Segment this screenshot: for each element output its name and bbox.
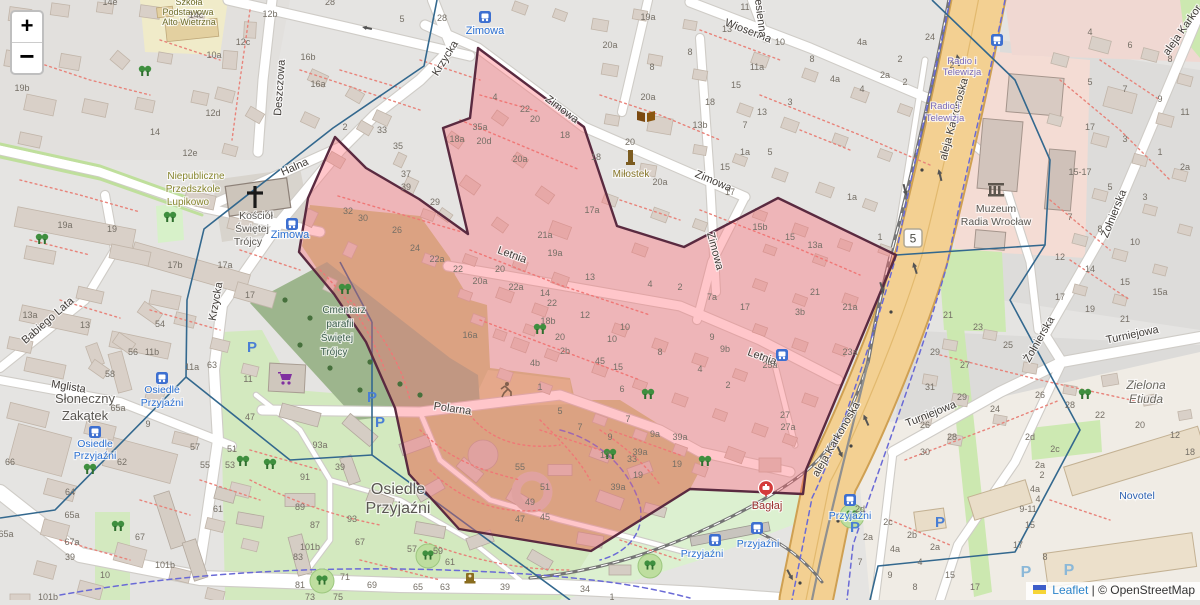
svg-text:29: 29 — [957, 392, 967, 402]
svg-text:1a: 1a — [740, 147, 750, 157]
svg-text:3: 3 — [787, 97, 792, 107]
svg-text:17: 17 — [740, 302, 750, 312]
svg-text:15a: 15a — [1152, 287, 1167, 297]
svg-text:26: 26 — [920, 420, 930, 430]
svg-text:20a: 20a — [512, 154, 527, 164]
svg-text:19: 19 — [107, 224, 117, 234]
svg-text:65: 65 — [413, 582, 423, 592]
svg-text:59: 59 — [433, 546, 443, 556]
svg-text:11a: 11a — [185, 362, 199, 372]
svg-text:P: P — [247, 339, 257, 356]
svg-text:53: 53 — [225, 460, 235, 470]
svg-text:9: 9 — [145, 419, 150, 429]
svg-text:20: 20 — [1135, 420, 1145, 430]
svg-text:17: 17 — [1055, 292, 1065, 302]
svg-text:18: 18 — [560, 130, 570, 140]
svg-text:83: 83 — [293, 552, 303, 562]
svg-text:2a: 2a — [1180, 162, 1190, 172]
svg-text:17: 17 — [1085, 122, 1095, 132]
svg-text:23: 23 — [973, 322, 983, 332]
svg-text:13a: 13a — [807, 240, 822, 250]
svg-text:Przyjaźni: Przyjaźni — [366, 500, 431, 517]
svg-text:22: 22 — [520, 104, 530, 114]
svg-text:45: 45 — [595, 356, 605, 366]
svg-text:15-17: 15-17 — [1068, 167, 1091, 177]
svg-text:9a: 9a — [650, 429, 660, 439]
svg-text:10: 10 — [775, 37, 785, 47]
svg-text:19: 19 — [1085, 304, 1095, 314]
svg-text:8: 8 — [1167, 54, 1172, 64]
svg-text:2a: 2a — [1035, 460, 1045, 470]
svg-text:4: 4 — [1035, 494, 1040, 504]
svg-text:1: 1 — [1157, 147, 1162, 157]
svg-text:22a: 22a — [508, 282, 523, 292]
svg-text:13: 13 — [585, 272, 595, 282]
svg-text:2a: 2a — [930, 542, 940, 552]
svg-text:27: 27 — [780, 410, 790, 420]
svg-text:17: 17 — [245, 290, 255, 300]
svg-text:67: 67 — [355, 537, 365, 547]
svg-text:32: 32 — [343, 206, 353, 216]
svg-text:19a: 19a — [640, 12, 655, 22]
svg-text:11b: 11b — [145, 347, 159, 357]
svg-text:101b: 101b — [300, 542, 320, 552]
svg-text:8: 8 — [649, 62, 654, 72]
svg-text:20: 20 — [555, 332, 565, 342]
svg-text:12: 12 — [1170, 430, 1180, 440]
svg-text:15b: 15b — [752, 222, 767, 232]
svg-text:9: 9 — [607, 432, 612, 442]
svg-text:9b: 9b — [720, 344, 730, 354]
svg-text:Słoneczny: Słoneczny — [55, 391, 115, 406]
svg-text:20d: 20d — [476, 136, 491, 146]
svg-text:15: 15 — [720, 162, 730, 172]
svg-text:13: 13 — [757, 107, 767, 117]
svg-text:Trójcy: Trójcy — [234, 236, 263, 248]
svg-text:28: 28 — [947, 432, 957, 442]
svg-text:26: 26 — [1035, 390, 1045, 400]
svg-text:15: 15 — [613, 362, 623, 372]
svg-text:25: 25 — [1003, 340, 1013, 350]
svg-text:Kościół: Kościół — [239, 210, 274, 222]
svg-text:4: 4 — [1087, 27, 1092, 37]
svg-text:Etiuda: Etiuda — [1129, 392, 1163, 406]
svg-text:20a: 20a — [472, 276, 487, 286]
svg-text:Osiedle: Osiedle — [77, 438, 113, 450]
svg-text:19b: 19b — [14, 83, 29, 93]
svg-text:89: 89 — [295, 502, 305, 512]
svg-text:Muzeum: Muzeum — [976, 203, 1017, 215]
svg-text:10: 10 — [620, 322, 630, 332]
svg-text:8: 8 — [809, 54, 814, 64]
svg-text:P: P — [935, 514, 945, 531]
svg-text:101b: 101b — [155, 560, 175, 570]
svg-text:1: 1 — [609, 592, 614, 600]
svg-text:Niepubliczne: Niepubliczne — [167, 171, 225, 182]
svg-text:5: 5 — [1087, 77, 1092, 87]
svg-text:19a: 19a — [57, 220, 72, 230]
svg-text:31: 31 — [925, 382, 935, 392]
svg-text:39: 39 — [500, 582, 510, 592]
svg-text:12: 12 — [1055, 252, 1065, 262]
svg-text:9: 9 — [887, 570, 892, 580]
svg-text:14: 14 — [150, 127, 160, 137]
svg-text:65a: 65a — [110, 403, 125, 413]
svg-text:62: 62 — [117, 457, 127, 467]
svg-text:13a: 13a — [22, 310, 37, 320]
svg-text:12e: 12e — [182, 148, 197, 158]
svg-text:9: 9 — [1157, 94, 1162, 104]
svg-text:20: 20 — [625, 137, 635, 147]
svg-text:55: 55 — [200, 460, 210, 470]
svg-text:15: 15 — [1025, 520, 1035, 530]
svg-text:63: 63 — [440, 582, 450, 592]
svg-text:65a: 65a — [0, 529, 14, 539]
svg-text:49: 49 — [525, 497, 535, 507]
svg-text:8: 8 — [1042, 552, 1047, 562]
svg-text:4: 4 — [697, 364, 702, 374]
svg-text:64: 64 — [65, 487, 75, 497]
svg-text:28: 28 — [325, 0, 335, 7]
svg-text:11: 11 — [1180, 107, 1189, 117]
svg-text:20a: 20a — [602, 40, 617, 50]
svg-text:13: 13 — [80, 320, 90, 330]
svg-text:Szkoła: Szkoła — [175, 0, 202, 7]
svg-text:24: 24 — [410, 243, 420, 253]
svg-text:Novotel: Novotel — [1119, 490, 1155, 502]
svg-text:Świętej: Świętej — [321, 331, 353, 344]
svg-text:5: 5 — [557, 406, 562, 416]
svg-text:34: 34 — [580, 584, 590, 594]
svg-text:27: 27 — [960, 360, 970, 370]
svg-text:51: 51 — [540, 482, 550, 492]
svg-text:3: 3 — [1122, 134, 1127, 144]
svg-text:parafii: parafii — [326, 319, 353, 330]
svg-text:Bagłaj: Bagłaj — [752, 500, 783, 512]
svg-text:2: 2 — [725, 380, 730, 390]
svg-text:2b: 2b — [560, 346, 570, 356]
svg-text:21: 21 — [810, 287, 820, 297]
svg-text:18b: 18b — [540, 316, 555, 326]
svg-text:16b: 16b — [300, 52, 315, 62]
svg-text:6: 6 — [619, 384, 624, 394]
svg-text:35a: 35a — [472, 122, 487, 132]
svg-text:18: 18 — [1185, 447, 1195, 457]
svg-text:66: 66 — [5, 457, 15, 467]
svg-text:9-11: 9-11 — [1019, 504, 1036, 514]
svg-text:12c: 12c — [236, 37, 251, 47]
svg-text:12b: 12b — [262, 9, 277, 19]
svg-text:Osiedle: Osiedle — [371, 481, 425, 498]
svg-text:11: 11 — [740, 2, 749, 12]
svg-text:5: 5 — [910, 232, 917, 246]
svg-text:58: 58 — [105, 369, 115, 379]
svg-text:13: 13 — [600, 450, 610, 460]
svg-text:61: 61 — [445, 557, 455, 567]
svg-text:24: 24 — [925, 32, 935, 42]
svg-text:Przedszkole: Przedszkole — [166, 184, 221, 195]
svg-text:17a: 17a — [217, 260, 232, 270]
svg-text:Radio i: Radio i — [930, 101, 960, 112]
svg-text:33: 33 — [377, 125, 387, 135]
svg-text:65a: 65a — [64, 510, 79, 520]
svg-text:37: 37 — [401, 169, 411, 179]
svg-text:2d: 2d — [1025, 432, 1035, 442]
svg-text:Zielona: Zielona — [1125, 378, 1166, 392]
svg-text:19: 19 — [672, 459, 682, 469]
svg-text:57: 57 — [407, 544, 417, 554]
svg-text:5: 5 — [399, 14, 404, 24]
svg-text:10a: 10a — [206, 50, 221, 60]
svg-text:P: P — [1021, 564, 1032, 581]
svg-text:Miłostek: Miłostek — [613, 169, 651, 180]
svg-text:27a: 27a — [780, 422, 795, 432]
svg-text:6: 6 — [1127, 40, 1132, 50]
svg-text:4a: 4a — [857, 37, 867, 47]
svg-text:91: 91 — [300, 472, 310, 482]
svg-text:25a: 25a — [762, 360, 777, 370]
svg-text:4a: 4a — [1030, 484, 1040, 494]
svg-text:Telewizja: Telewizja — [926, 113, 965, 124]
svg-text:16a: 16a — [462, 330, 477, 340]
svg-text:22: 22 — [453, 264, 463, 274]
svg-text:26: 26 — [392, 225, 402, 235]
svg-text:2: 2 — [677, 282, 682, 292]
svg-text:12: 12 — [580, 310, 590, 320]
svg-text:7: 7 — [577, 422, 582, 432]
svg-text:20a: 20a — [652, 177, 667, 187]
svg-text:2d: 2d — [855, 504, 865, 514]
svg-text:18: 18 — [591, 152, 601, 162]
svg-text:2c: 2c — [1050, 444, 1060, 454]
svg-text:P: P — [375, 414, 385, 431]
svg-text:93a: 93a — [312, 440, 327, 450]
svg-text:14: 14 — [540, 288, 550, 298]
svg-text:39a: 39a — [610, 482, 625, 492]
svg-text:18a: 18a — [449, 134, 464, 144]
svg-text:10: 10 — [607, 334, 617, 344]
svg-text:51: 51 — [227, 444, 237, 454]
svg-text:9: 9 — [709, 332, 714, 342]
svg-text:8: 8 — [1097, 224, 1102, 234]
svg-text:55: 55 — [515, 462, 525, 472]
svg-text:7: 7 — [1067, 212, 1072, 222]
svg-text:17b: 17b — [167, 260, 182, 270]
svg-text:71: 71 — [340, 572, 350, 582]
svg-text:5: 5 — [767, 147, 772, 157]
svg-text:2: 2 — [1039, 470, 1044, 480]
svg-text:Cmentarz: Cmentarz — [322, 305, 365, 316]
svg-text:Przyjaźni: Przyjaźni — [141, 397, 184, 409]
svg-text:17: 17 — [1013, 540, 1023, 550]
svg-text:21: 21 — [1120, 314, 1130, 324]
svg-text:7: 7 — [857, 557, 862, 567]
svg-text:28: 28 — [437, 13, 447, 23]
svg-text:8: 8 — [657, 347, 662, 357]
svg-text:Przyjaźni: Przyjaźni — [681, 548, 724, 560]
svg-text:24: 24 — [990, 404, 1000, 414]
svg-text:Zimowa: Zimowa — [271, 229, 310, 241]
svg-text:35: 35 — [393, 141, 403, 151]
svg-text:39a: 39a — [672, 432, 687, 442]
svg-text:67a: 67a — [64, 537, 79, 547]
svg-text:45: 45 — [540, 512, 550, 522]
svg-text:Radia Wrocław: Radia Wrocław — [961, 216, 1032, 228]
svg-text:21: 21 — [943, 310, 953, 320]
svg-text:47: 47 — [245, 412, 255, 422]
svg-text:47: 47 — [515, 514, 525, 524]
svg-text:1a: 1a — [847, 192, 857, 202]
svg-text:56: 56 — [128, 347, 138, 357]
svg-text:14c: 14c — [189, 10, 204, 20]
svg-text:4b: 4b — [530, 358, 540, 368]
svg-text:1: 1 — [537, 382, 542, 392]
svg-text:3b: 3b — [795, 307, 805, 317]
svg-text:19a: 19a — [547, 248, 562, 258]
svg-text:2: 2 — [897, 54, 902, 64]
svg-text:4: 4 — [647, 279, 652, 289]
svg-text:4: 4 — [492, 92, 497, 102]
svg-text:17: 17 — [725, 187, 735, 197]
svg-text:67: 67 — [135, 532, 145, 542]
svg-text:17a: 17a — [584, 205, 599, 215]
svg-text:7: 7 — [625, 414, 630, 424]
svg-text:57: 57 — [190, 442, 200, 452]
svg-text:18: 18 — [705, 97, 715, 107]
svg-text:8: 8 — [687, 47, 692, 57]
svg-text:14e: 14e — [102, 0, 117, 7]
svg-text:8: 8 — [912, 582, 917, 592]
svg-text:2c: 2c — [883, 517, 893, 527]
svg-text:11a: 11a — [750, 62, 764, 72]
svg-text:75: 75 — [333, 592, 343, 600]
svg-text:4: 4 — [917, 557, 922, 567]
svg-text:29: 29 — [930, 347, 940, 357]
svg-text:4: 4 — [859, 84, 864, 94]
svg-text:Przyjaźni: Przyjaźni — [737, 538, 780, 550]
svg-text:P: P — [1064, 562, 1075, 579]
svg-text:20a: 20a — [640, 92, 655, 102]
svg-text:28: 28 — [1065, 400, 1075, 410]
svg-text:39: 39 — [335, 462, 345, 472]
svg-text:69: 69 — [367, 580, 377, 590]
svg-text:2a: 2a — [880, 70, 890, 80]
svg-text:10: 10 — [1130, 237, 1140, 247]
svg-text:12d: 12d — [205, 108, 220, 118]
svg-text:81: 81 — [295, 580, 305, 590]
svg-text:22: 22 — [1095, 410, 1105, 420]
svg-text:4a: 4a — [890, 544, 900, 554]
svg-text:30: 30 — [358, 213, 368, 223]
svg-text:Lupikowo: Lupikowo — [167, 197, 210, 208]
svg-text:21a: 21a — [842, 302, 857, 312]
svg-text:15: 15 — [731, 80, 741, 90]
svg-text:3: 3 — [1142, 192, 1147, 202]
svg-text:93: 93 — [347, 514, 357, 524]
svg-text:Zakątek: Zakątek — [62, 408, 109, 423]
svg-text:2b: 2b — [907, 530, 917, 540]
svg-text:39: 39 — [65, 552, 75, 562]
svg-text:63: 63 — [207, 360, 217, 370]
svg-text:13b: 13b — [692, 120, 707, 130]
svg-text:5: 5 — [1107, 182, 1112, 192]
svg-text:39a: 39a — [632, 447, 647, 457]
svg-text:29: 29 — [430, 197, 440, 207]
svg-text:Przyjaźni: Przyjaźni — [74, 450, 117, 462]
svg-text:101b: 101b — [38, 592, 58, 600]
svg-text:13: 13 — [722, 24, 732, 34]
svg-text:73: 73 — [305, 592, 315, 600]
svg-text:7: 7 — [1122, 84, 1127, 94]
svg-text:P: P — [367, 389, 377, 406]
svg-text:2: 2 — [902, 77, 907, 87]
svg-text:15: 15 — [785, 232, 795, 242]
svg-text:20: 20 — [495, 264, 505, 274]
svg-text:Osiedle: Osiedle — [144, 384, 180, 396]
svg-text:Trójcy: Trójcy — [321, 347, 348, 358]
svg-text:21a: 21a — [537, 230, 552, 240]
svg-text:15: 15 — [945, 570, 955, 580]
svg-text:15: 15 — [1120, 277, 1130, 287]
svg-text:7a: 7a — [707, 292, 717, 302]
svg-text:61: 61 — [213, 504, 223, 514]
svg-text:20: 20 — [530, 114, 540, 124]
svg-text:1: 1 — [877, 232, 882, 242]
svg-text:Zimowa: Zimowa — [466, 25, 505, 37]
svg-text:30: 30 — [920, 447, 930, 457]
svg-text:2a: 2a — [863, 532, 873, 542]
svg-text:7: 7 — [742, 120, 747, 130]
svg-text:4a: 4a — [830, 74, 840, 84]
svg-text:39: 39 — [401, 182, 411, 192]
svg-text:23a: 23a — [842, 347, 857, 357]
svg-text:2: 2 — [342, 122, 347, 132]
svg-text:16a: 16a — [310, 79, 325, 89]
svg-text:2: 2 — [949, 60, 954, 70]
svg-text:22: 22 — [547, 298, 557, 308]
svg-text:10: 10 — [100, 570, 110, 580]
svg-text:Świętej: Świętej — [235, 222, 269, 235]
svg-text:17: 17 — [970, 582, 980, 592]
svg-text:14: 14 — [1085, 264, 1095, 274]
svg-text:19: 19 — [633, 470, 643, 480]
svg-text:22a: 22a — [429, 254, 444, 264]
svg-text:11: 11 — [243, 374, 252, 384]
svg-text:54: 54 — [155, 319, 165, 329]
svg-text:87: 87 — [310, 520, 320, 530]
